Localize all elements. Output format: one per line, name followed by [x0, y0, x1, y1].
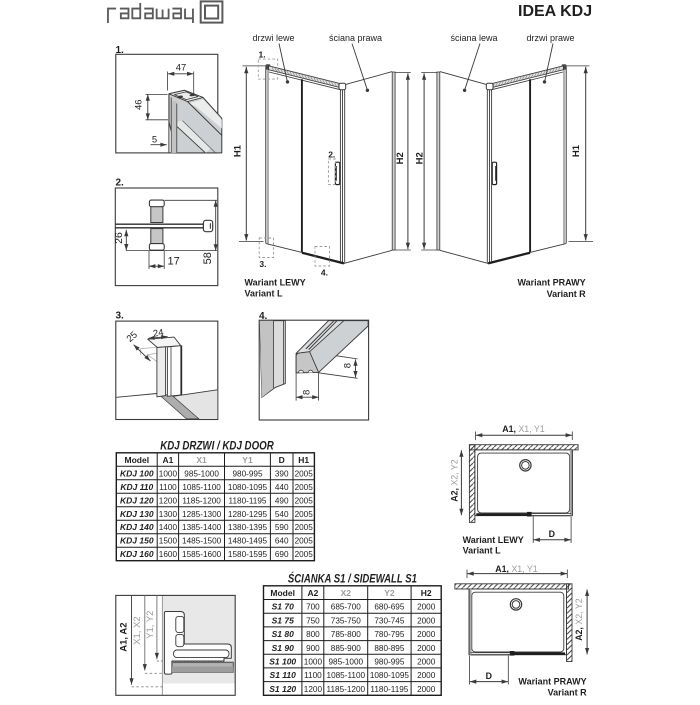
- svg-text:58: 58: [202, 252, 214, 264]
- svg-text:750: 750: [306, 616, 320, 625]
- svg-text:Variant L: Variant L: [245, 288, 284, 298]
- svg-text:ŚCIANKA S1 / SIDEWALL S1: ŚCIANKA S1 / SIDEWALL S1: [288, 571, 417, 586]
- svg-text:2000: 2000: [417, 671, 436, 680]
- svg-text:735-750: 735-750: [331, 616, 361, 625]
- svg-text:Wariant LEWY: Wariant LEWY: [245, 277, 306, 287]
- svg-text:24: 24: [152, 327, 164, 340]
- svg-text:1080-1095: 1080-1095: [228, 483, 268, 492]
- svg-text:1180-1195: 1180-1195: [229, 496, 267, 505]
- svg-text:A1, A2: A1, A2: [119, 622, 130, 651]
- svg-text:1185-1200: 1185-1200: [182, 496, 221, 505]
- svg-text:540: 540: [275, 510, 289, 519]
- svg-text:785-800: 785-800: [331, 630, 361, 639]
- svg-text:780-795: 780-795: [374, 630, 404, 639]
- svg-text:640: 640: [275, 537, 289, 546]
- svg-text:IDEA KDJ: IDEA KDJ: [518, 3, 592, 20]
- svg-text:1200: 1200: [159, 496, 178, 505]
- svg-text:S1 100: S1 100: [269, 656, 296, 666]
- svg-text:ściana prawa: ściana prawa: [329, 33, 382, 43]
- svg-text:A1, X1, Y1: A1, X1, Y1: [495, 564, 538, 574]
- svg-text:A2, X2, Y2: A2, X2, Y2: [574, 598, 584, 641]
- svg-text:685-700: 685-700: [331, 603, 361, 612]
- svg-text:S1 110: S1 110: [270, 670, 297, 680]
- svg-text:1000: 1000: [159, 469, 178, 478]
- svg-text:2.: 2.: [328, 150, 335, 160]
- svg-text:D: D: [279, 455, 285, 465]
- svg-text:900: 900: [306, 644, 320, 653]
- svg-text:Wariant PRAWY: Wariant PRAWY: [518, 277, 586, 287]
- svg-text:KDJ 160: KDJ 160: [120, 549, 154, 559]
- svg-text:Variant R: Variant R: [548, 687, 588, 697]
- svg-text:690: 690: [275, 550, 289, 559]
- svg-text:1400: 1400: [159, 523, 178, 532]
- svg-text:800: 800: [306, 630, 320, 639]
- svg-text:H2: H2: [421, 588, 432, 598]
- svg-text:Model: Model: [270, 588, 295, 598]
- svg-text:2005: 2005: [295, 523, 314, 532]
- svg-text:1100: 1100: [159, 483, 177, 492]
- svg-text:S1 80: S1 80: [272, 629, 294, 639]
- svg-text:Wariant LEWY: Wariant LEWY: [463, 535, 524, 545]
- svg-text:KDJ 120: KDJ 120: [120, 495, 154, 505]
- svg-text:S1 90: S1 90: [272, 643, 294, 653]
- svg-text:1500: 1500: [159, 537, 178, 546]
- svg-text:Y1, Y2: Y1, Y2: [145, 611, 156, 639]
- svg-text:1.: 1.: [259, 50, 266, 60]
- svg-text:1485-1500: 1485-1500: [182, 537, 222, 546]
- svg-text:490: 490: [275, 496, 289, 505]
- svg-text:8: 8: [343, 363, 354, 368]
- svg-text:1285-1300: 1285-1300: [182, 510, 222, 519]
- svg-text:KDJ 110: KDJ 110: [120, 482, 153, 492]
- svg-text:1600: 1600: [159, 550, 178, 559]
- svg-text:1085-1100: 1085-1100: [182, 483, 221, 492]
- svg-text:3.: 3.: [116, 311, 125, 322]
- svg-text:H1: H1: [298, 455, 309, 465]
- svg-text:D: D: [549, 529, 555, 539]
- svg-text:2000: 2000: [417, 657, 436, 666]
- svg-text:980-995: 980-995: [232, 469, 262, 478]
- svg-text:980-995: 980-995: [374, 657, 404, 666]
- svg-text:1180-1195: 1180-1195: [370, 685, 408, 694]
- svg-text:KDJ 150: KDJ 150: [120, 536, 154, 546]
- svg-text:X1: X1: [196, 455, 207, 465]
- svg-text:S1 75: S1 75: [272, 615, 294, 625]
- svg-text:1100: 1100: [304, 671, 322, 680]
- svg-text:1480-1495: 1480-1495: [228, 537, 268, 546]
- svg-text:700: 700: [306, 603, 320, 612]
- svg-text:47: 47: [176, 62, 187, 73]
- svg-text:1580-1595: 1580-1595: [228, 550, 268, 559]
- svg-text:KDJ 140: KDJ 140: [120, 522, 154, 532]
- svg-text:S1 70: S1 70: [272, 602, 294, 612]
- svg-text:X2: X2: [341, 588, 352, 598]
- svg-text:A1, X1, Y1: A1, X1, Y1: [502, 424, 545, 434]
- svg-text:X1, X2: X1, X2: [132, 616, 143, 645]
- svg-text:1185-1200: 1185-1200: [327, 685, 366, 694]
- svg-text:2005: 2005: [295, 510, 314, 519]
- svg-text:drzwi lewe: drzwi lewe: [252, 33, 294, 43]
- svg-text:A2: A2: [307, 588, 318, 598]
- svg-text:1385-1400: 1385-1400: [182, 523, 222, 532]
- svg-text:8: 8: [301, 390, 312, 395]
- svg-text:2000: 2000: [417, 630, 436, 639]
- svg-text:2005: 2005: [295, 537, 314, 546]
- svg-text:H1: H1: [571, 144, 582, 157]
- svg-text:2000: 2000: [417, 603, 436, 612]
- svg-text:A1: A1: [162, 455, 173, 465]
- svg-text:H2: H2: [414, 152, 425, 164]
- svg-text:885-900: 885-900: [331, 644, 361, 653]
- svg-text:1585-1600: 1585-1600: [182, 550, 222, 559]
- svg-text:1080-1095: 1080-1095: [370, 671, 410, 680]
- svg-text:390: 390: [275, 469, 289, 478]
- svg-text:Variant L: Variant L: [463, 545, 502, 555]
- svg-text:H1: H1: [233, 144, 244, 157]
- svg-text:ściana lewa: ściana lewa: [450, 33, 497, 43]
- svg-text:drzwi prawe: drzwi prawe: [526, 33, 574, 43]
- svg-text:1380-1395: 1380-1395: [228, 523, 268, 532]
- svg-text:730-745: 730-745: [374, 616, 404, 625]
- svg-text:KDJ DRZWI / KDJ DOOR: KDJ DRZWI / KDJ DOOR: [160, 439, 274, 453]
- svg-text:Y2: Y2: [384, 588, 395, 598]
- svg-text:2000: 2000: [417, 685, 436, 694]
- svg-text:26: 26: [113, 232, 125, 244]
- svg-text:KDJ 130: KDJ 130: [120, 509, 154, 519]
- svg-text:3.: 3.: [259, 259, 266, 269]
- svg-text:Variant R: Variant R: [547, 289, 587, 299]
- svg-text:590: 590: [275, 523, 289, 532]
- svg-text:Model: Model: [125, 455, 150, 465]
- svg-text:985-1000: 985-1000: [184, 469, 219, 478]
- svg-text:S1 120: S1 120: [269, 684, 296, 694]
- svg-text:680-695: 680-695: [374, 603, 404, 612]
- svg-text:Y1: Y1: [242, 455, 253, 465]
- svg-text:2005: 2005: [295, 496, 314, 505]
- svg-text:2000: 2000: [417, 616, 436, 625]
- svg-text:1200: 1200: [304, 685, 323, 694]
- svg-text:1085-1100: 1085-1100: [327, 671, 366, 680]
- svg-text:440: 440: [275, 483, 289, 492]
- svg-text:D: D: [486, 671, 492, 681]
- svg-text:2005: 2005: [295, 469, 314, 478]
- svg-text:1300: 1300: [159, 510, 178, 519]
- svg-text:985-1000: 985-1000: [328, 657, 363, 666]
- svg-text:1000: 1000: [304, 657, 323, 666]
- svg-text:H2: H2: [395, 152, 406, 164]
- svg-text:5: 5: [152, 135, 157, 146]
- svg-text:2000: 2000: [417, 644, 436, 653]
- svg-text:2005: 2005: [295, 550, 314, 559]
- svg-text:880-895: 880-895: [374, 644, 404, 653]
- svg-text:4.: 4.: [321, 267, 328, 277]
- svg-text:2005: 2005: [295, 483, 314, 492]
- svg-text:A2, X2, Y2: A2, X2, Y2: [450, 459, 460, 502]
- svg-text:2.: 2.: [116, 178, 125, 189]
- svg-text:Wariant PRAWY: Wariant PRAWY: [518, 677, 586, 687]
- svg-text:17: 17: [168, 256, 180, 268]
- svg-text:46: 46: [134, 99, 145, 110]
- svg-text:1280-1295: 1280-1295: [228, 510, 268, 519]
- svg-text:KDJ 100: KDJ 100: [120, 468, 154, 478]
